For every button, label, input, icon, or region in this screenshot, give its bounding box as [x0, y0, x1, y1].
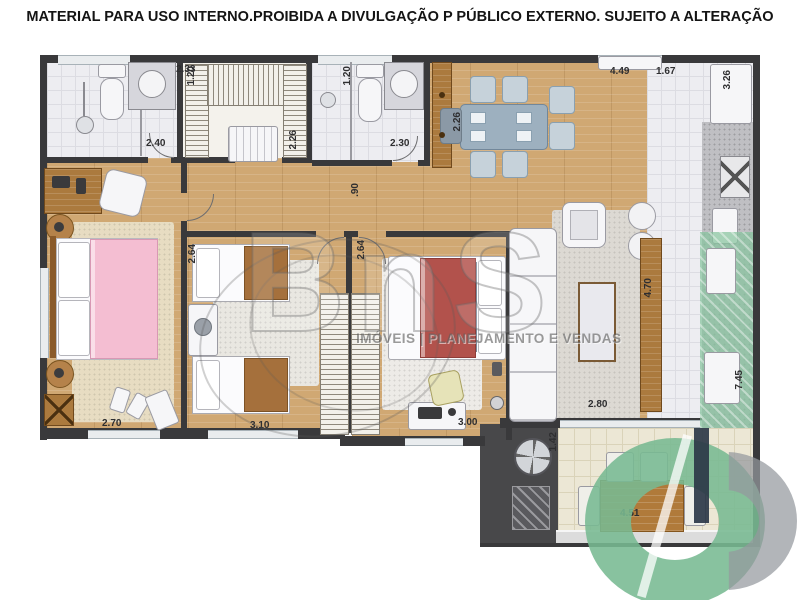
placemat-3	[516, 112, 532, 124]
pillow-1a	[58, 242, 90, 298]
panel-knob-1	[439, 92, 445, 98]
watermark-tagline: IMÓVEIS | PLANEJAMENTO E VENDAS	[356, 330, 621, 346]
closet-dresser	[228, 126, 278, 162]
washer-icon	[706, 248, 736, 294]
dim-bath2-depth: 1.20	[342, 66, 353, 85]
lamp-icon-1	[54, 222, 64, 232]
dim-corridor: .90	[350, 183, 361, 197]
placemat-4	[516, 130, 532, 142]
placemat-1	[470, 112, 486, 124]
wall-bed1-right-a	[181, 160, 187, 193]
dim-bed3-width: 3.00	[458, 417, 477, 428]
floor-lamp-icon	[490, 396, 504, 410]
bed1-duvet	[90, 239, 158, 359]
dim-living-width: 2.80	[588, 399, 607, 410]
dining-table-icon	[460, 104, 548, 150]
dim-dining-width: 4.49	[610, 66, 629, 77]
dim-balcony-depth: 1.42	[548, 432, 559, 451]
bed1-desk-books	[76, 178, 86, 194]
wall-bath2-hall	[424, 58, 430, 166]
dim-service-depth: 7.45	[734, 370, 745, 389]
window-bed1-bottom	[88, 430, 160, 439]
tv-panel	[640, 238, 662, 412]
dim-bath2-width: 2.30	[390, 138, 409, 149]
placemat-2	[470, 130, 486, 142]
dining-chair-4	[502, 151, 528, 178]
wall-bath2-stub	[418, 160, 430, 166]
bed3-plant-icon	[492, 362, 502, 376]
toilet-icon-2	[358, 78, 382, 122]
coffee-table	[578, 282, 616, 362]
dining-sideboard	[598, 56, 662, 70]
dining-chair-2	[502, 76, 528, 103]
dining-chair-1	[470, 76, 496, 103]
bed3-desk-deco	[448, 408, 456, 416]
brand-logo-bar	[694, 428, 709, 523]
pillow-1b	[58, 300, 90, 356]
dining-chair-3	[470, 151, 496, 178]
sink-icon-2	[390, 70, 418, 98]
closet-shelf-top	[207, 64, 287, 106]
dim-kitchen-depth: 3.26	[722, 70, 733, 89]
dim-closet-width: 2.33	[176, 64, 195, 75]
dim-bed1-width: 2.70	[102, 418, 121, 429]
dim-bed2-depth: 2.64	[187, 244, 198, 263]
dim-entry-panel: 2.26	[452, 112, 463, 131]
dim-living-depth: 4.70	[643, 278, 654, 297]
pouf-1	[628, 202, 656, 230]
grill-icon	[514, 438, 552, 476]
stove-icon	[720, 156, 750, 198]
sink-icon	[138, 70, 166, 98]
shower-icon	[76, 116, 94, 134]
dim-closet-depth: 2.26	[288, 130, 299, 149]
toilet-tank-2	[356, 64, 384, 78]
toilet-tank	[98, 64, 126, 78]
bed1-dresser	[44, 394, 74, 426]
bed3-desk-tv	[418, 407, 442, 419]
dim-bath1-width: 2.40	[146, 138, 165, 149]
lamp-icon-2	[54, 368, 64, 378]
window-bed3-bottom	[405, 438, 463, 446]
bed1-desk-laptop	[52, 176, 70, 188]
wall-bath1-bottom	[40, 157, 148, 163]
armchair-cushion	[570, 210, 598, 240]
wall-left	[40, 55, 47, 440]
grill-counter	[512, 486, 550, 530]
dining-chair-6	[549, 122, 575, 150]
shower-arm	[83, 82, 85, 116]
dining-chair-5	[549, 86, 575, 114]
shower-icon-2	[320, 92, 336, 108]
panel-knob-2	[439, 132, 445, 138]
bed1-desk	[44, 168, 102, 214]
twin-a-pillow	[196, 248, 220, 298]
toilet-icon	[100, 78, 124, 120]
dim-kitchen-pass: 1.67	[656, 66, 675, 77]
disclaimer-text: MATERIAL PARA USO INTERNO.PROIBIDA A DIV…	[12, 8, 788, 25]
window-bedroom1	[40, 268, 49, 358]
wall-bath2-bottom	[312, 160, 392, 166]
floorplan-image: MATERIAL PARA USO INTERNO.PROIBIDA A DIV…	[0, 0, 800, 600]
